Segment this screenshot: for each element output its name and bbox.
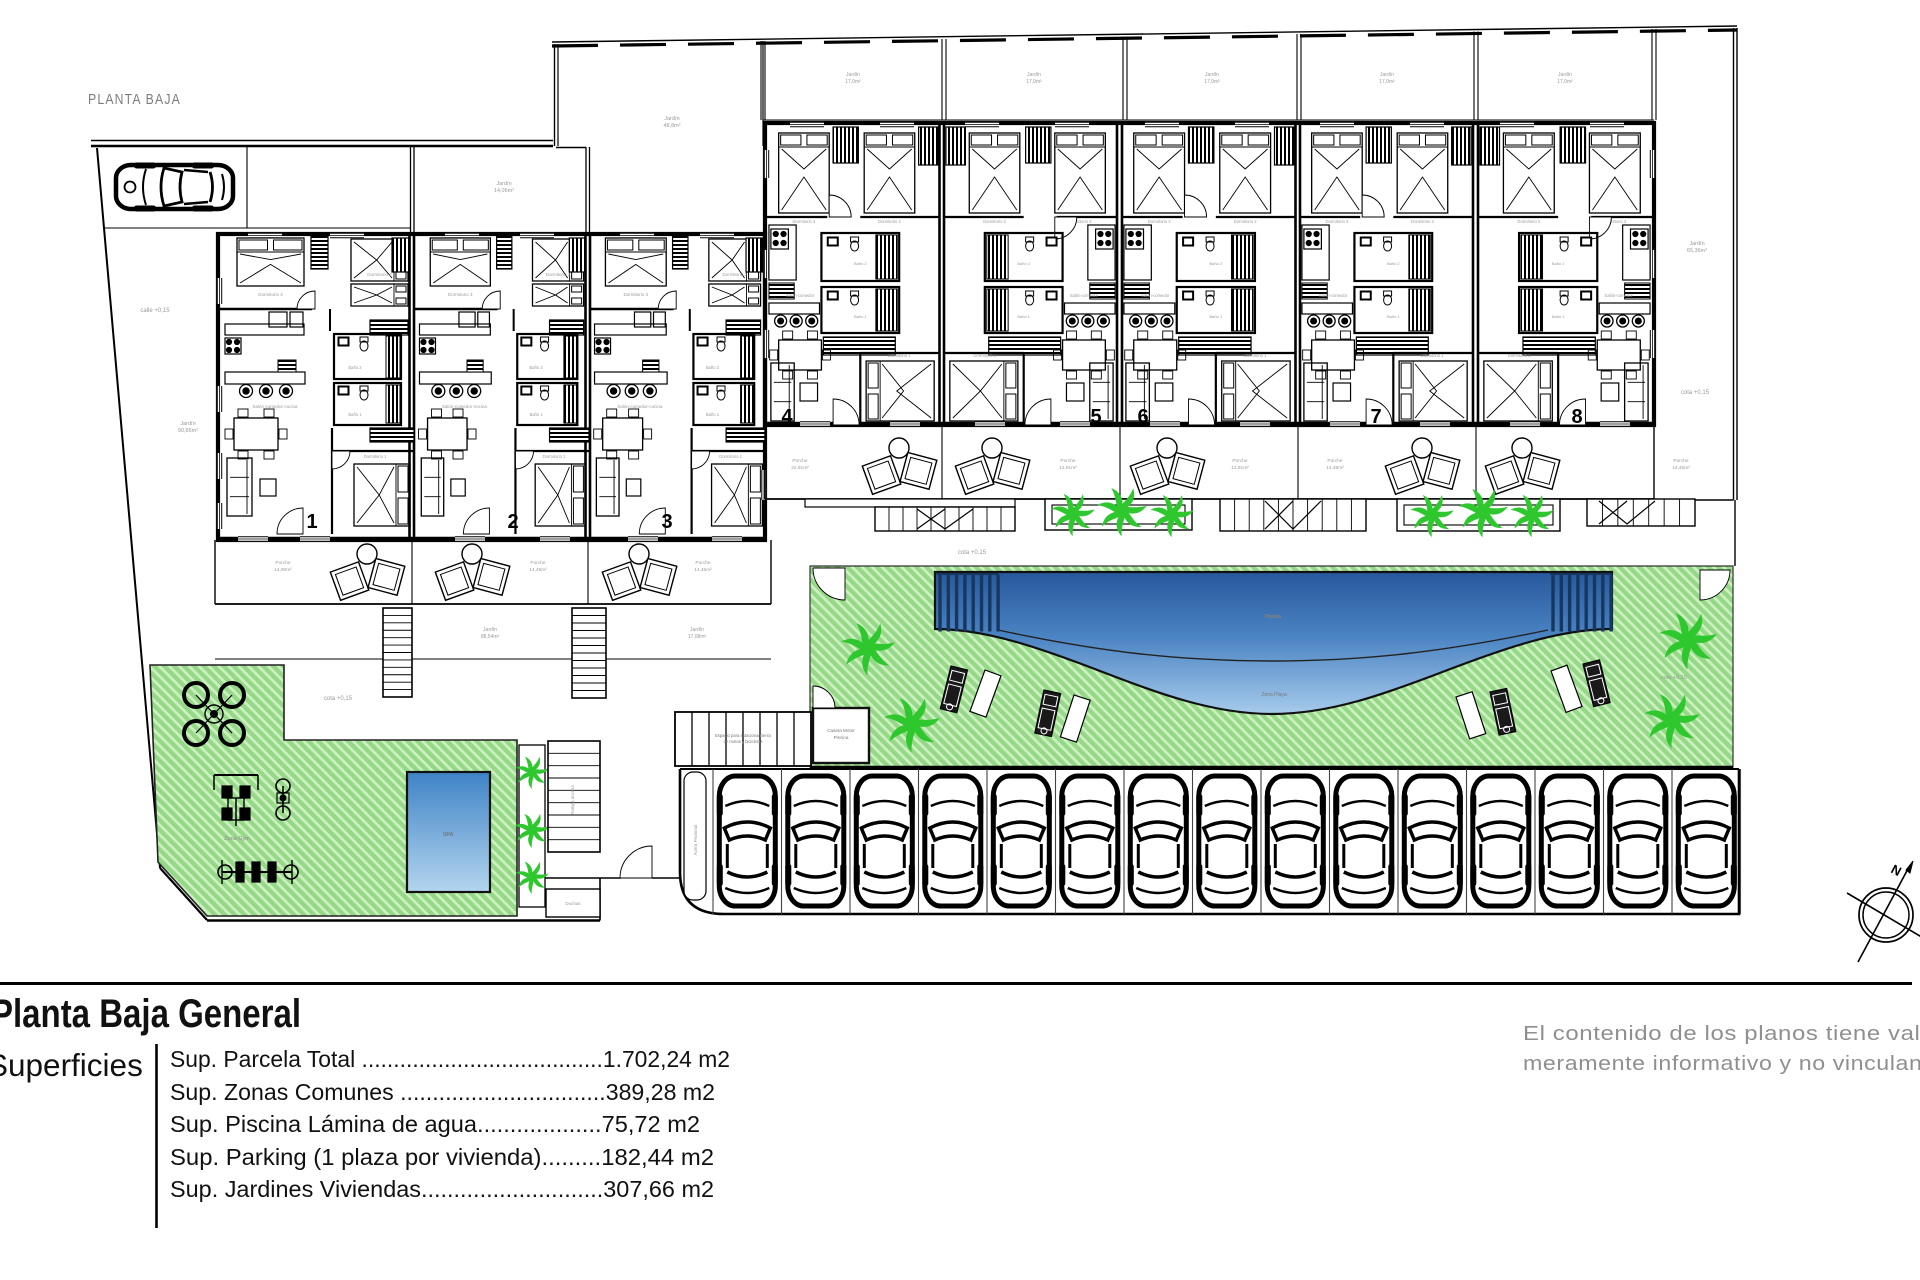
svg-text:Jardín: Jardín xyxy=(1689,241,1704,247)
svg-text:Dormitorio 3: Dormitorio 3 xyxy=(624,292,649,297)
svg-text:90,86m²: 90,86m² xyxy=(178,428,198,434)
svg-text:cota +0,15: cota +0,15 xyxy=(958,550,987,556)
svg-text:12,91m²: 12,91m² xyxy=(1231,465,1249,471)
svg-text:Espacio para estacionamiento: Espacio para estacionamiento xyxy=(715,733,772,738)
svg-text:17,0m²: 17,0m² xyxy=(1204,79,1220,85)
svg-text:Jardín: Jardín xyxy=(846,72,860,78)
svg-text:Sup. Parcela Total ...........: Sup. Parcela Total .....................… xyxy=(170,1046,730,1072)
svg-text:Dormitorio 3: Dormitorio 3 xyxy=(1148,219,1171,224)
svg-text:Porche: Porche xyxy=(792,458,808,464)
svg-text:Jardín: Jardín xyxy=(496,181,511,187)
svg-text:Baño 2: Baño 2 xyxy=(1387,261,1400,266)
svg-text:PLANTA BAJA: PLANTA BAJA xyxy=(88,92,181,108)
svg-text:Baño 2: Baño 2 xyxy=(1209,261,1222,266)
svg-text:Baño 1: Baño 1 xyxy=(1017,314,1030,319)
svg-text:Piscina: Piscina xyxy=(1265,614,1281,620)
svg-text:14,06m²: 14,06m² xyxy=(494,188,514,194)
svg-text:Jardín: Jardín xyxy=(1380,72,1394,78)
svg-text:Caseta Motor: Caseta Motor xyxy=(827,728,855,733)
svg-text:4: 4 xyxy=(781,406,793,428)
svg-text:2: 2 xyxy=(507,511,518,533)
svg-text:Porche: Porche xyxy=(1673,458,1689,464)
svg-text:Salón-comedor: Salón-comedor xyxy=(786,293,815,298)
svg-text:cota +0,15: cota +0,15 xyxy=(324,696,353,702)
svg-text:de motos y bicicletas: de motos y bicicletas xyxy=(724,739,763,744)
svg-text:Dormitorio 2: Dormitorio 2 xyxy=(722,272,747,277)
svg-text:Porche: Porche xyxy=(1060,458,1076,464)
svg-text:Dormitorio 1: Dormitorio 1 xyxy=(1508,353,1531,358)
svg-text:Baño 2: Baño 2 xyxy=(1017,261,1030,266)
svg-text:Duchas: Duchas xyxy=(565,901,581,906)
svg-text:Dormitorio 2: Dormitorio 2 xyxy=(1517,219,1540,224)
svg-text:Sup. Jardines Viviendas.......: Sup. Jardines Viviendas.................… xyxy=(170,1176,714,1202)
svg-text:Dormitorio 2: Dormitorio 2 xyxy=(1411,219,1434,224)
svg-text:Jardín: Jardín xyxy=(1205,72,1219,78)
svg-text:Baño 1: Baño 1 xyxy=(854,314,867,319)
svg-text:calle +0,15: calle +0,15 xyxy=(140,308,170,314)
svg-text:Baño 1: Baño 1 xyxy=(1552,314,1565,319)
svg-text:Porche: Porche xyxy=(1232,458,1248,464)
svg-text:3: 3 xyxy=(661,511,672,533)
svg-text:Zona Gym: Zona Gym xyxy=(224,836,250,842)
svg-text:6: 6 xyxy=(1137,406,1148,428)
svg-text:Dormitorio 1: Dormitorio 1 xyxy=(719,454,742,459)
svg-text:El contenido de los planos tie: El contenido de los planos tiene valor xyxy=(1523,1023,1920,1045)
svg-text:14,45m²: 14,45m² xyxy=(694,567,712,573)
svg-text:Salón-comedor-cocina: Salón-comedor-cocina xyxy=(442,404,488,409)
svg-text:Dormitorio 1: Dormitorio 1 xyxy=(973,353,996,358)
svg-text:Jardín: Jardín xyxy=(1027,72,1041,78)
svg-text:Dormitorio 3: Dormitorio 3 xyxy=(1326,219,1349,224)
svg-text:Jardín: Jardín xyxy=(690,627,704,633)
svg-text:Dormitorio 1: Dormitorio 1 xyxy=(364,454,387,459)
svg-text:5: 5 xyxy=(1090,406,1101,428)
svg-text:17,0m²: 17,0m² xyxy=(1379,79,1395,85)
svg-text:Baño 2: Baño 2 xyxy=(348,365,362,370)
svg-text:17,0m²: 17,0m² xyxy=(845,79,861,85)
svg-text:17,0m²: 17,0m² xyxy=(1026,79,1042,85)
svg-text:Dormitorio 3: Dormitorio 3 xyxy=(448,292,473,297)
svg-text:65,36m²: 65,36m² xyxy=(1687,248,1707,254)
svg-text:Dormitorio 3: Dormitorio 3 xyxy=(793,219,816,224)
svg-text:14,45m²: 14,45m² xyxy=(529,567,547,573)
svg-text:Baño 2: Baño 2 xyxy=(1552,261,1565,266)
svg-text:Porche: Porche xyxy=(695,560,711,566)
svg-text:cota +0,15: cota +0,15 xyxy=(1661,675,1687,681)
svg-text:Jardín: Jardín xyxy=(664,116,679,122)
svg-text:Salón-comedor-cocina: Salón-comedor-cocina xyxy=(252,404,298,409)
svg-text:Superficies: Superficies xyxy=(0,1047,143,1083)
svg-text:Sup. Parking (1 plaza por vivi: Sup. Parking (1 plaza por vivienda).....… xyxy=(170,1144,714,1170)
svg-text:Jardín: Jardín xyxy=(180,421,195,427)
svg-text:Baño 2: Baño 2 xyxy=(706,365,720,370)
svg-text:Baño 1: Baño 1 xyxy=(529,412,543,417)
svg-text:17,0m²: 17,0m² xyxy=(1557,79,1573,85)
svg-text:Dormitorio 2: Dormitorio 2 xyxy=(1234,219,1257,224)
svg-text:Sup. Zonas Comunes ...........: Sup. Zonas Comunes .....................… xyxy=(170,1079,715,1105)
svg-text:Baño 1: Baño 1 xyxy=(348,412,362,417)
svg-text:Salón-comedor: Salón-comedor xyxy=(1141,293,1170,298)
svg-text:Dormitorio 1: Dormitorio 1 xyxy=(543,454,566,459)
svg-text:88,54m²: 88,54m² xyxy=(481,634,500,640)
svg-text:Salón-comedor: Salón-comedor xyxy=(1319,293,1348,298)
svg-text:Baño 2: Baño 2 xyxy=(529,365,543,370)
svg-text:Dormitorio 2: Dormitorio 2 xyxy=(983,219,1006,224)
svg-text:14,90m²: 14,90m² xyxy=(274,567,292,573)
svg-text:meramente informativo y no vin: meramente informativo y no vinculante xyxy=(1523,1053,1920,1075)
svg-text:Rampa acceso: Rampa acceso xyxy=(570,784,575,815)
svg-text:17,08m²: 17,08m² xyxy=(688,634,707,640)
svg-text:1: 1 xyxy=(306,511,317,533)
svg-text:Salón-comedor: Salón-comedor xyxy=(1605,293,1634,298)
svg-text:Dormitorio 1: Dormitorio 1 xyxy=(888,353,911,358)
svg-text:Acera Peatonal: Acera Peatonal xyxy=(693,825,698,856)
svg-text:Piscina: Piscina xyxy=(834,735,849,740)
svg-text:Sup. Piscina Lámina de agua...: Sup. Piscina Lámina de agua.............… xyxy=(170,1111,700,1137)
svg-text:Salón-comedor-cocina: Salón-comedor-cocina xyxy=(617,404,663,409)
svg-text:Jardín: Jardín xyxy=(483,627,497,633)
svg-text:48,8m²: 48,8m² xyxy=(663,123,680,129)
svg-text:14,45m²: 14,45m² xyxy=(1672,465,1690,471)
svg-text:SPA: SPA xyxy=(443,832,454,838)
svg-text:Porche: Porche xyxy=(275,560,291,566)
svg-text:Dormitorio 2: Dormitorio 2 xyxy=(367,272,392,277)
svg-text:Dormitorio 3: Dormitorio 3 xyxy=(258,292,283,297)
svg-text:Zona Playa: Zona Playa xyxy=(1261,692,1287,698)
svg-text:22,91m²: 22,91m² xyxy=(791,465,809,471)
svg-text:Jardín: Jardín xyxy=(1558,72,1572,78)
svg-text:Porche: Porche xyxy=(1327,458,1343,464)
svg-text:Baño 2: Baño 2 xyxy=(854,261,867,266)
svg-text:Baño 1: Baño 1 xyxy=(706,412,720,417)
svg-text:Baño 1: Baño 1 xyxy=(1387,314,1400,319)
svg-text:8: 8 xyxy=(1571,406,1582,428)
svg-text:7: 7 xyxy=(1370,406,1381,428)
svg-text:14,45m²: 14,45m² xyxy=(1326,465,1344,471)
svg-text:Porche: Porche xyxy=(530,560,546,566)
svg-text:cota +0,15: cota +0,15 xyxy=(1681,390,1710,396)
svg-text:12,91m²: 12,91m² xyxy=(1059,465,1077,471)
svg-text:Dormitorio 2: Dormitorio 2 xyxy=(878,219,901,224)
svg-text:Dormitorio 1: Dormitorio 1 xyxy=(1421,353,1444,358)
svg-text:Baño 1: Baño 1 xyxy=(1209,314,1222,319)
svg-text:Salón-comedor: Salón-comedor xyxy=(1070,293,1099,298)
svg-text:Dormitorio 1: Dormitorio 1 xyxy=(1244,353,1267,358)
svg-text:Planta Baja General: Planta Baja General xyxy=(0,992,301,1036)
svg-text:Dormitorio 2: Dormitorio 2 xyxy=(546,272,571,277)
